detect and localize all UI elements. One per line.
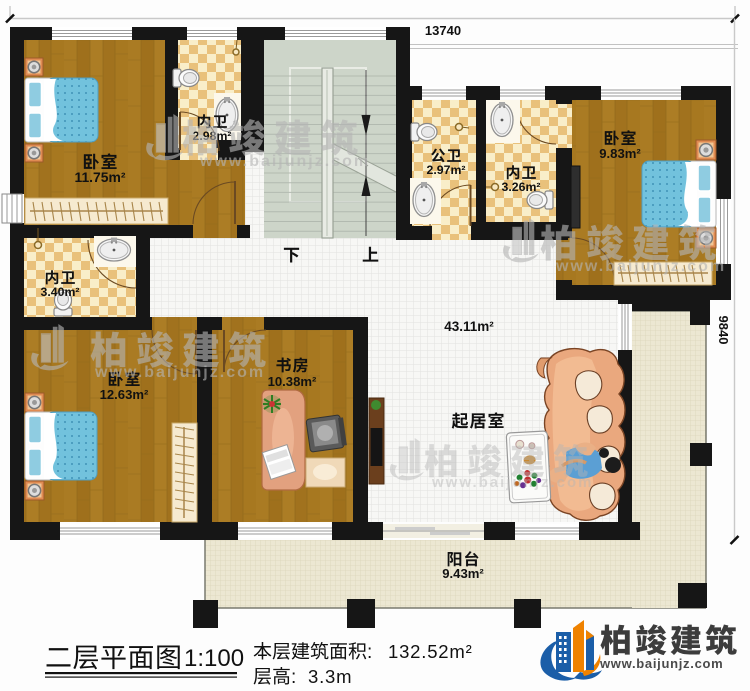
svg-text:13740: 13740 <box>425 23 461 38</box>
svg-text:www.baijunjz.com: www.baijunjz.com <box>599 656 723 671</box>
svg-text:9.43m²: 9.43m² <box>442 566 484 581</box>
svg-text:2.97m²: 2.97m² <box>427 163 466 177</box>
svg-text:1:100: 1:100 <box>184 645 244 672</box>
svg-text:11.75m²: 11.75m² <box>75 169 126 185</box>
svg-text:3.26m²: 3.26m² <box>502 180 541 194</box>
svg-text:www.baijunjz.com: www.baijunjz.com <box>199 153 370 170</box>
svg-text:www.baijunjz.com: www.baijunjz.com <box>555 258 726 275</box>
svg-text:12.63m²: 12.63m² <box>100 387 149 402</box>
svg-text:10.38m²: 10.38m² <box>268 374 317 389</box>
svg-text::: : <box>367 642 372 663</box>
svg-text:132.52m²: 132.52m² <box>388 641 473 662</box>
svg-text:43.11m²: 43.11m² <box>444 319 494 334</box>
svg-text:www.baijunjz.com: www.baijunjz.com <box>94 364 265 381</box>
svg-text::: : <box>291 667 296 688</box>
svg-text:9840: 9840 <box>716 316 731 345</box>
svg-text:9.83m²: 9.83m² <box>599 146 641 161</box>
svg-text:www.baijunjz.com: www.baijunjz.com <box>431 474 593 491</box>
svg-text:3.40m²: 3.40m² <box>41 285 80 299</box>
svg-text:3.3m: 3.3m <box>308 666 352 687</box>
